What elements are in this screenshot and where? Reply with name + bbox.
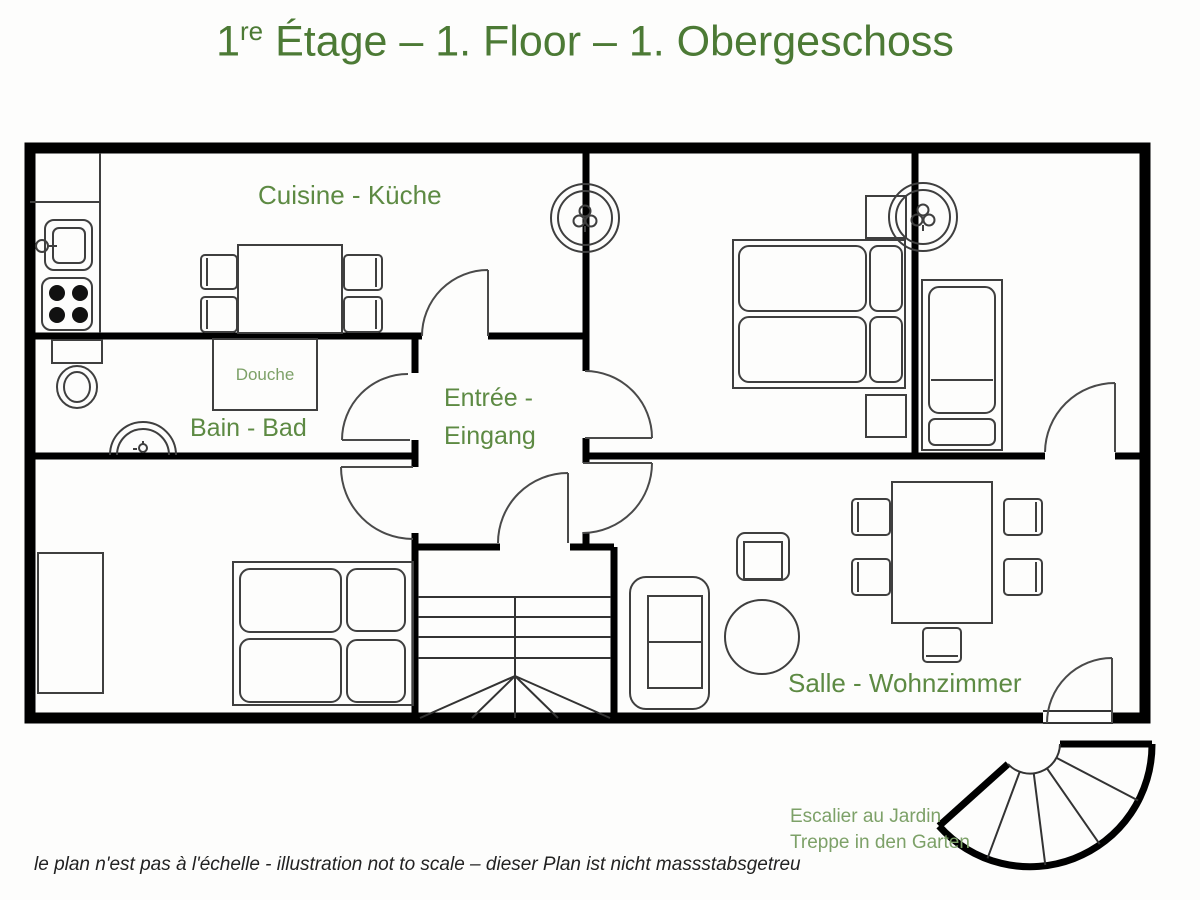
label-kitchen: Cuisine - Küche: [258, 180, 442, 211]
label-shower: Douche: [213, 365, 317, 385]
dining-table-and-chairs: [852, 482, 1042, 662]
kitchen-sink: [36, 220, 92, 270]
washbasin: [110, 422, 176, 455]
floor-plan-page: 1re Étage – 1. Floor – 1. Obergeschoss C…: [0, 0, 1200, 900]
kitchen-stove: [42, 278, 92, 330]
double-bed: [733, 240, 905, 388]
garden-door-opening: [1043, 704, 1113, 730]
label-entrance-line1: Entrée -: [444, 384, 533, 413]
garden-stairs-line2: Treppe in den Garten: [790, 832, 970, 853]
main-staircase: [418, 597, 611, 718]
floor-plan-drawing: [0, 0, 1200, 900]
wardrobe: [38, 553, 103, 693]
sofa: [630, 577, 709, 709]
label-bathroom: Bain - Bad: [190, 414, 307, 443]
title-text: Étage – 1. Floor – 1. Obergeschoss: [263, 17, 954, 65]
door-arcs: [341, 270, 1115, 723]
double-bed: [233, 562, 413, 705]
toilet: [52, 340, 102, 408]
garden-stairs-line1: Escalier au Jardin: [790, 806, 941, 827]
page-title: 1re Étage – 1. Floor – 1. Obergeschoss: [0, 16, 1170, 66]
title-number: 1: [216, 17, 240, 65]
kitchen-counter: [30, 153, 100, 333]
kitchen-table-and-chairs: [201, 245, 382, 333]
label-entrance-line2: Eingang: [444, 422, 536, 451]
label-living-room: Salle - Wohnzimmer: [788, 668, 1022, 699]
title-superscript: re: [240, 16, 263, 46]
scale-disclaimer: le plan n'est pas à l'échelle - illustra…: [34, 854, 801, 876]
round-table: [725, 600, 799, 674]
label-garden-stairs: Escalier au JardinTreppe in den Garten: [790, 804, 1010, 855]
single-bed: [922, 280, 1002, 450]
armchair: [737, 533, 789, 580]
